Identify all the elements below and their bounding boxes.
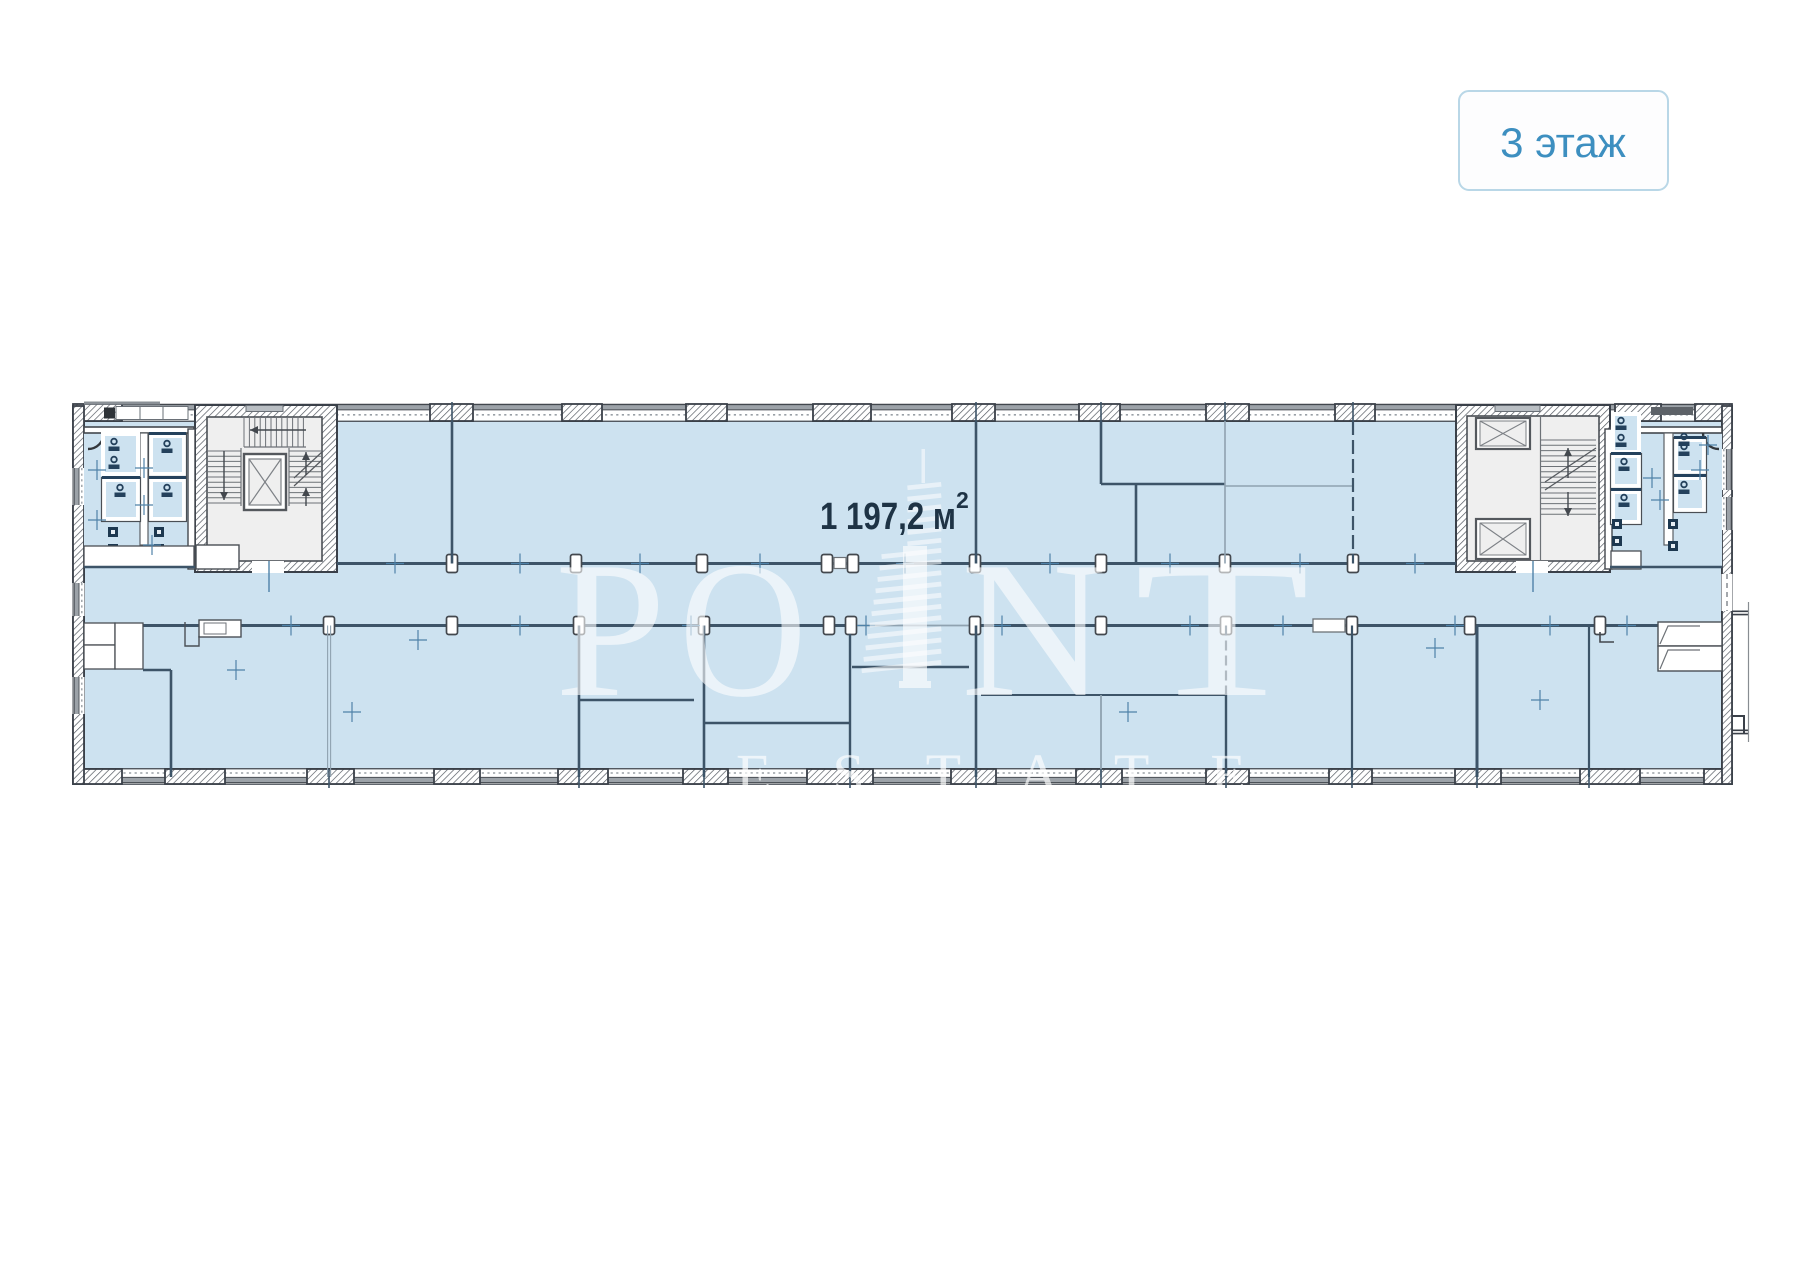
svg-text:3 этаж: 3 этаж: [1500, 119, 1626, 166]
svg-text:1 197,2 м: 1 197,2 м: [820, 496, 956, 538]
svg-text:P: P: [555, 522, 666, 738]
svg-text:O: O: [679, 522, 807, 738]
svg-text:2: 2: [956, 487, 969, 513]
svg-text:T: T: [1134, 522, 1310, 738]
svg-text:N: N: [961, 522, 1107, 738]
svg-text:ESTATE: ESTATE: [736, 742, 1307, 807]
